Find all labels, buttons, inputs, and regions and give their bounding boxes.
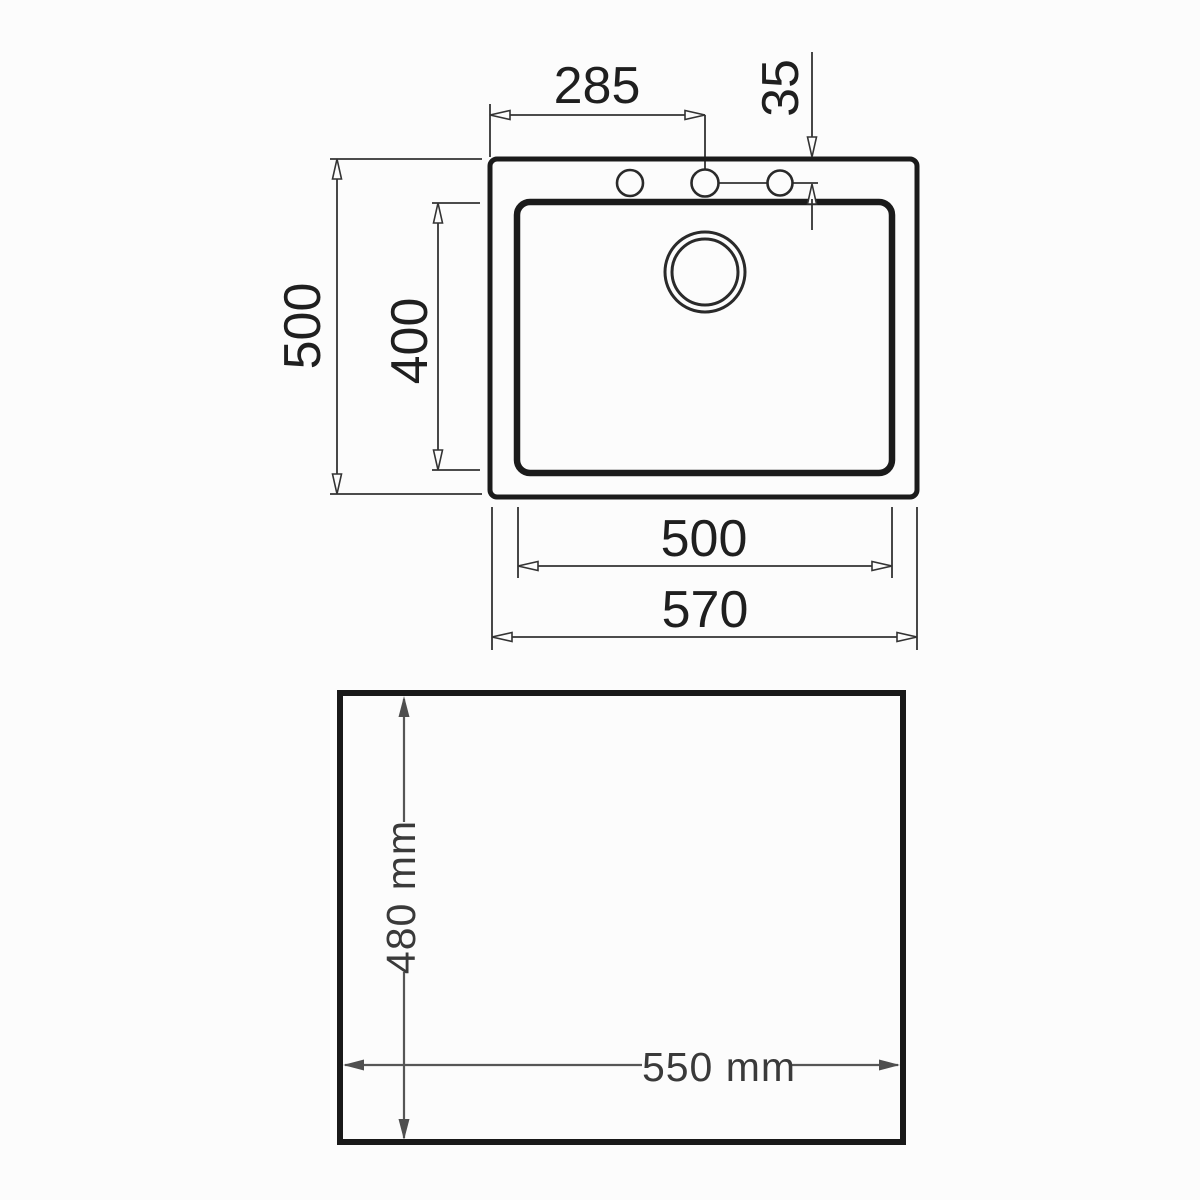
technical-drawing-page: 285 35 500 — [0, 0, 1200, 1200]
dim-label-550mm: 550 mm — [642, 1044, 796, 1090]
drain-outer-ring — [665, 232, 745, 312]
sink-bowl — [517, 202, 892, 473]
sink-top-view: 285 35 500 — [274, 52, 917, 650]
dim-label-285: 285 — [554, 57, 641, 115]
arrow-right-icon — [879, 1060, 900, 1071]
dim-bowl-depth: 400 — [381, 203, 480, 470]
arrow-left-icon — [343, 1060, 364, 1071]
dim-label-570: 570 — [662, 581, 749, 639]
arrow-down-icon — [434, 450, 443, 470]
tap-hole-right — [768, 171, 793, 196]
arrow-up-icon — [333, 159, 342, 179]
arrow-right-icon — [897, 633, 917, 642]
cutout-outline — [340, 693, 903, 1142]
arrow-down-icon — [399, 1119, 410, 1140]
arrow-left-icon — [492, 633, 512, 642]
sink-outer-rim — [490, 159, 917, 497]
arrow-up-icon — [399, 696, 410, 717]
dim-label-480mm: 480 mm — [378, 820, 424, 974]
dim-tap-center-offset: 285 — [490, 57, 705, 157]
arrow-down-icon — [333, 474, 342, 494]
arrow-right-icon — [685, 111, 705, 120]
dim-cutout-depth: 480 mm — [378, 696, 424, 1140]
arrow-left-icon — [490, 111, 510, 120]
cutout-view: 480 mm 550 mm — [340, 693, 903, 1142]
arrow-down-icon — [808, 137, 817, 157]
dim-label-35: 35 — [752, 59, 810, 117]
arrow-right-icon — [872, 562, 892, 571]
dim-label-500-width: 500 — [661, 510, 748, 568]
dim-overall-depth: 500 — [274, 159, 482, 494]
sink-technical-drawing: 285 35 500 — [0, 0, 1200, 1200]
arrow-up-icon — [434, 203, 443, 223]
drain-inner-ring — [672, 239, 738, 305]
dim-cutout-width: 550 mm — [343, 1044, 900, 1090]
arrow-left-icon — [518, 562, 538, 571]
tap-hole-left — [617, 170, 643, 196]
tap-hole-center — [692, 170, 719, 197]
dim-bowl-width: 500 — [518, 507, 892, 578]
dim-label-400: 400 — [381, 298, 439, 385]
dim-label-500-depth: 500 — [274, 283, 332, 370]
